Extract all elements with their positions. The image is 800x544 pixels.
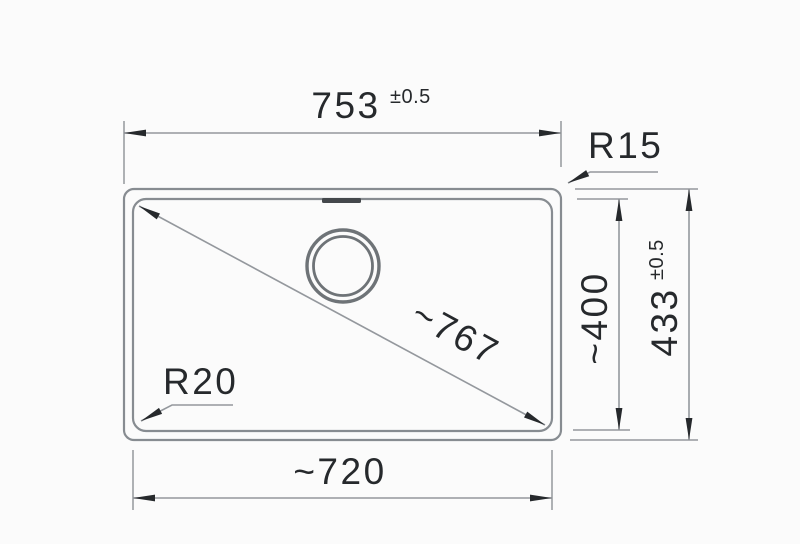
- sink-outer-rim: [124, 189, 561, 440]
- technical-drawing-canvas: 753 ±0.5 R15 ~400 433 ±0.5: [0, 0, 800, 544]
- sink-dimension-drawing: 753 ±0.5 R15 ~400 433 ±0.5: [0, 0, 800, 544]
- radius-callout-top-right: R15: [568, 125, 663, 183]
- radius-callout-bottom-left: R20: [141, 361, 238, 421]
- radius-label-r20: R20: [163, 361, 238, 402]
- dimension-label-diagonal: ~767: [405, 293, 507, 373]
- radius-label-r15: R15: [588, 125, 663, 166]
- dimension-top-width: 753 ±0.5: [124, 85, 561, 184]
- dimension-label-bottom-width: ~720: [293, 451, 386, 492]
- drain-circle: [307, 230, 379, 302]
- sink-outline: [124, 189, 561, 440]
- dimension-tolerance-outer-depth: ±0.5: [646, 239, 668, 280]
- dimension-label-outer-depth: 433: [644, 287, 685, 356]
- drain-outer-ring: [307, 230, 379, 302]
- leader-line: [568, 172, 658, 183]
- dimension-bottom-width: ~720: [133, 450, 552, 510]
- dimension-label-top-width: 753: [311, 85, 380, 126]
- dimension-tolerance-top-width: ±0.5: [390, 86, 431, 108]
- drain-inner-ring: [314, 237, 373, 296]
- dimension-label-inner-depth: ~400: [574, 271, 615, 364]
- overflow-slot: [322, 198, 361, 203]
- leader-line: [141, 405, 233, 421]
- dimension-inner-depth: ~400: [573, 199, 630, 430]
